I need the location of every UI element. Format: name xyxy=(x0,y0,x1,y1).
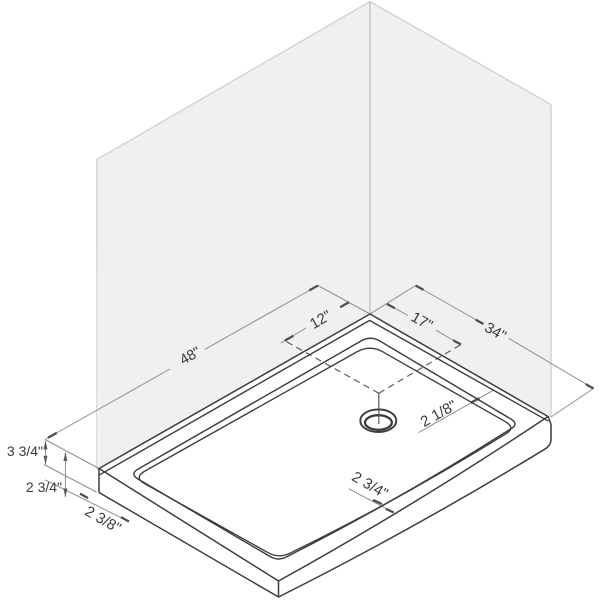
svg-text:3 3/4": 3 3/4" xyxy=(7,443,43,459)
svg-text:2 3/4": 2 3/4" xyxy=(26,479,62,495)
